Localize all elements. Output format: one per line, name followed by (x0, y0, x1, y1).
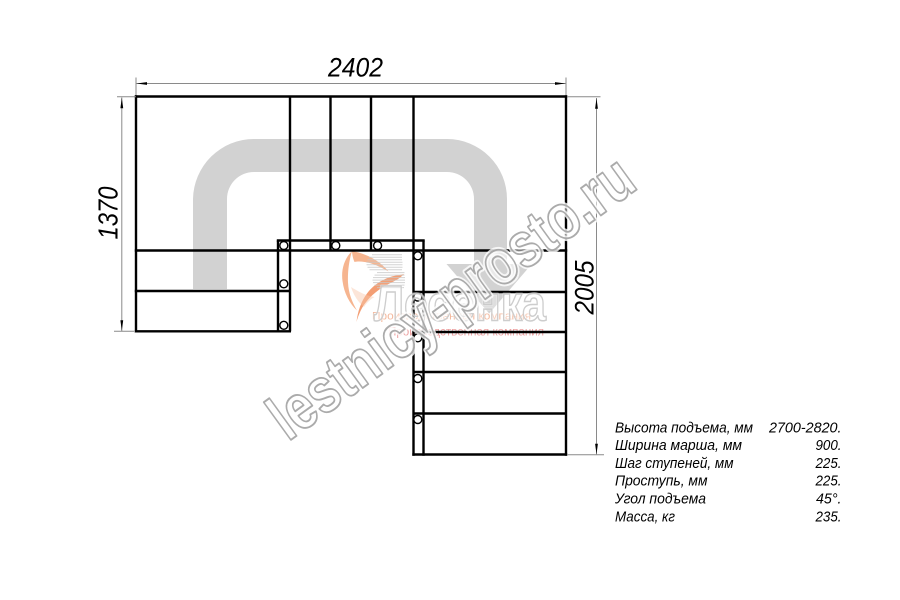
svg-text:225.: 225. (815, 473, 842, 490)
svg-text:Высота подъема, мм: Высота подъема, мм (615, 419, 754, 436)
svg-text:Шаг ступеней, мм: Шаг ступеней, мм (615, 455, 734, 472)
svg-text:2402: 2402 (327, 52, 383, 82)
svg-text:2700-2820.: 2700-2820. (768, 419, 841, 436)
svg-text:2005: 2005 (570, 260, 600, 315)
svg-text:Ширина марша, мм: Ширина марша, мм (615, 437, 743, 454)
svg-text:1370: 1370 (93, 186, 124, 239)
svg-text:45°.: 45°. (816, 491, 842, 508)
svg-text:900.: 900. (816, 437, 842, 454)
svg-text:Проступь, мм: Проступь, мм (615, 473, 708, 490)
svg-text:235.: 235. (815, 508, 842, 525)
svg-text:225.: 225. (815, 455, 842, 472)
svg-text:Масса, кг: Масса, кг (615, 508, 675, 525)
svg-text:Угол подъема: Угол подъема (614, 491, 706, 508)
